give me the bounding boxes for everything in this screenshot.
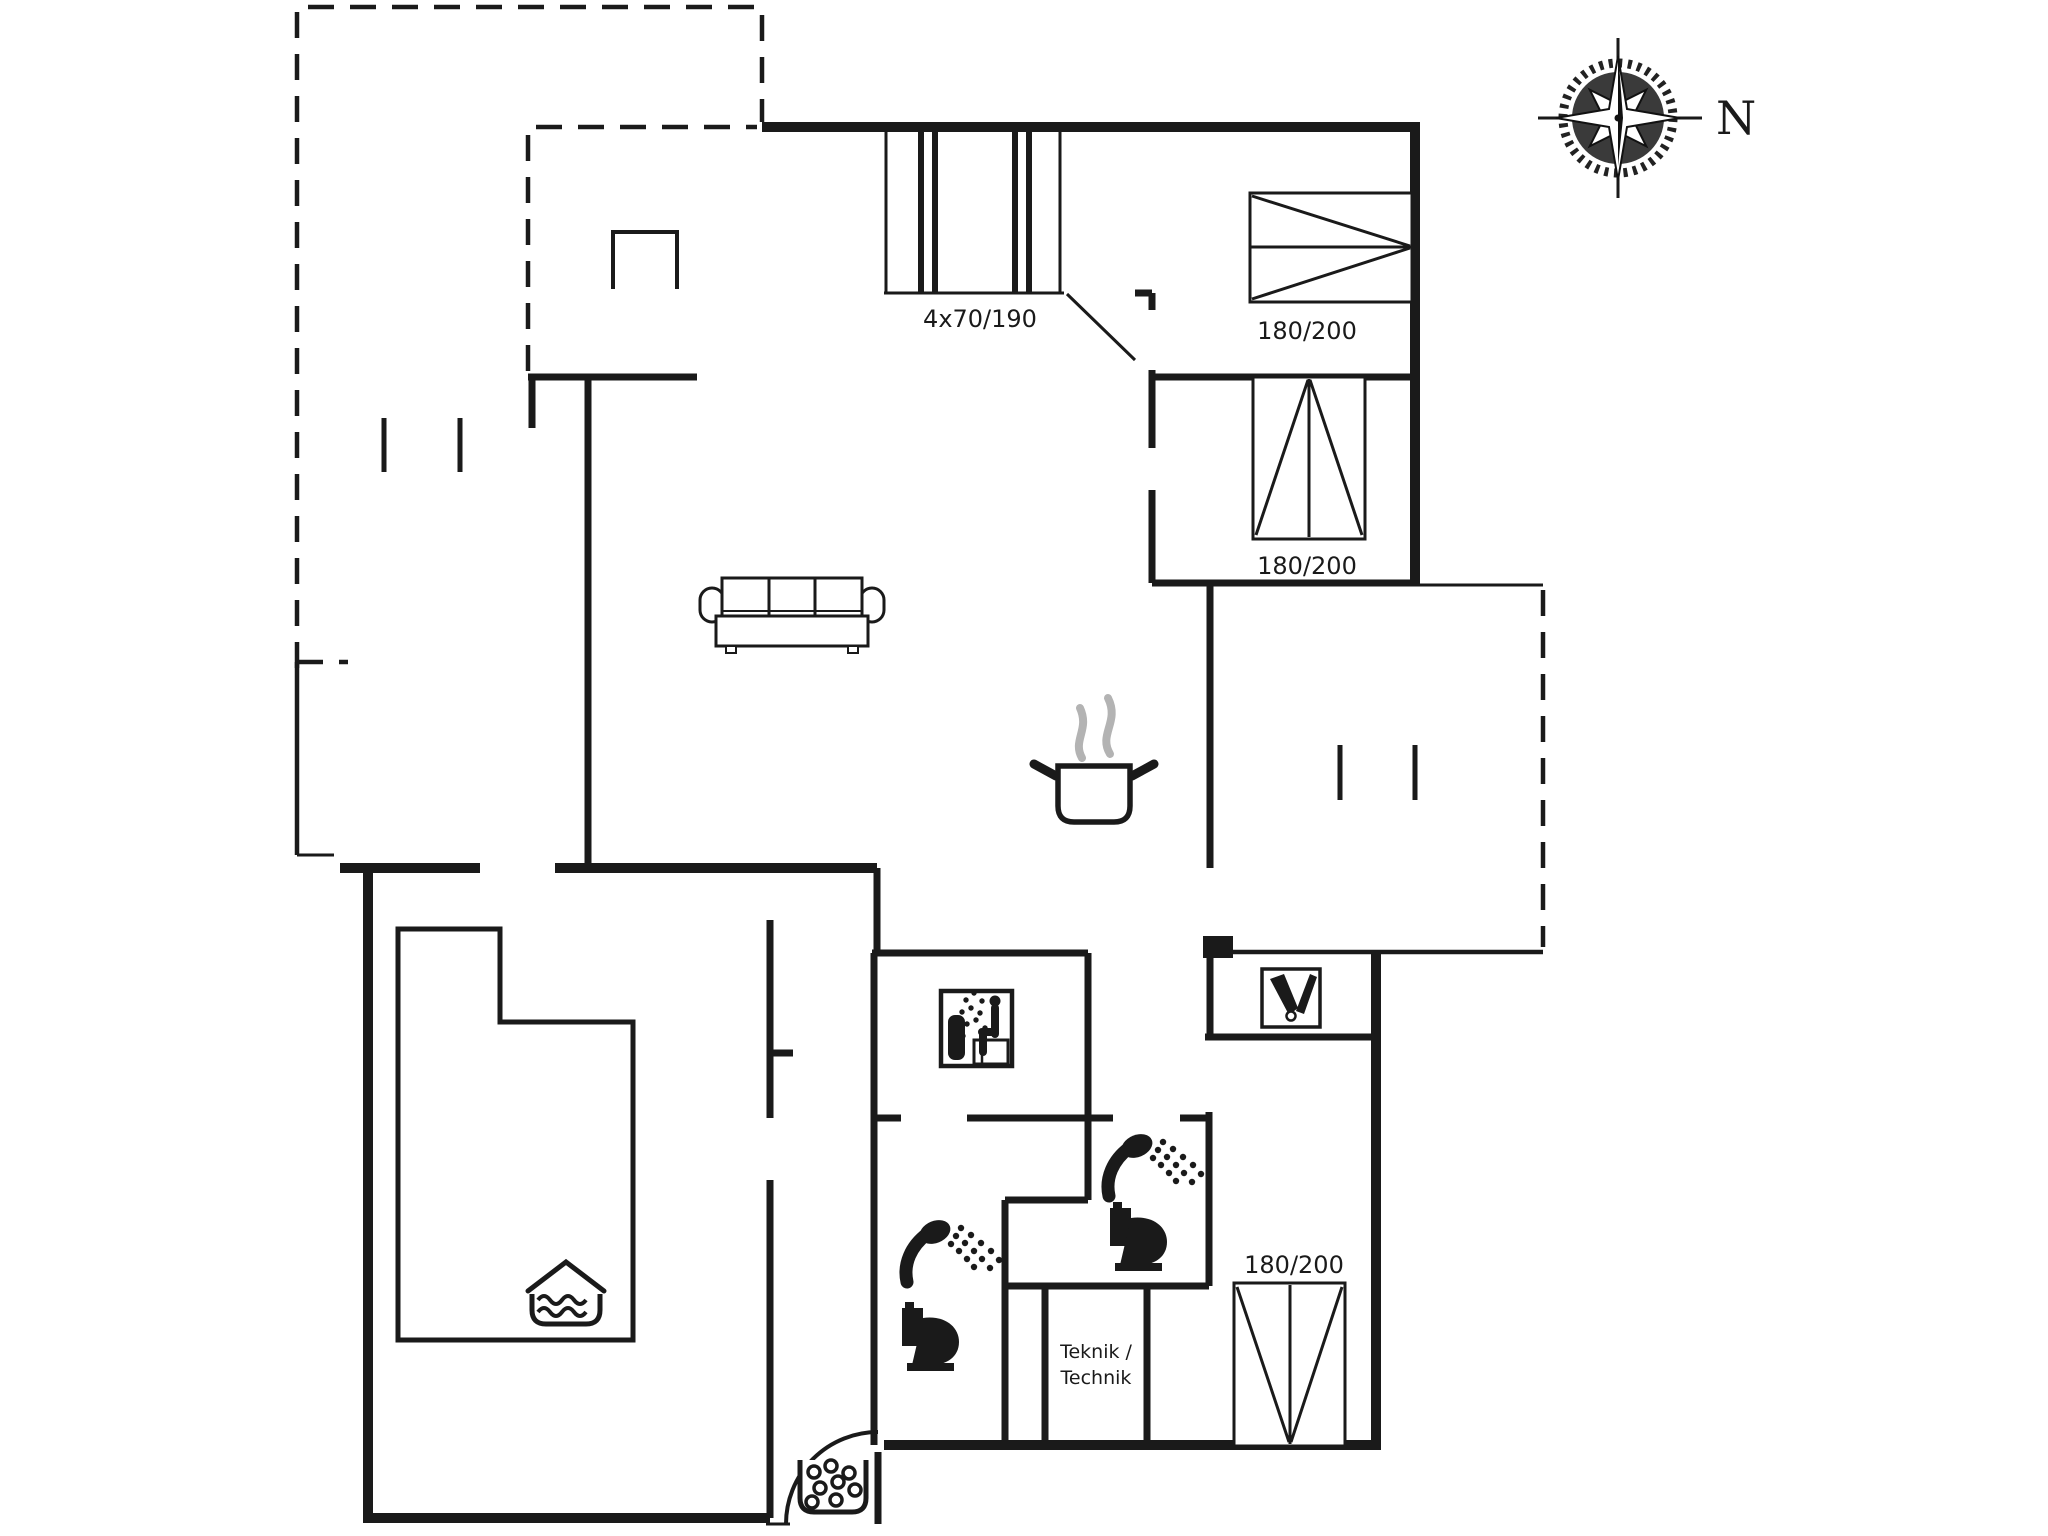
bed-middle-label: 180/200	[1257, 552, 1357, 580]
technik-label-line2: Technik	[1060, 1367, 1132, 1389]
entry-door-swing-line	[1067, 294, 1135, 360]
floor-plan: 4x70/190 180/200 180/200 180/200 Teknik …	[0, 0, 2048, 1536]
toilet-icon-bath-right	[1110, 1202, 1167, 1271]
shower-icon-bath-left	[906, 1216, 1002, 1282]
cooking-pot-icon	[1034, 698, 1154, 822]
wall-end-cap	[1203, 936, 1233, 958]
entry-sliding-door-panels	[921, 130, 1029, 293]
sofa-icon	[700, 578, 884, 653]
floor-plan-drawing: 4x70/190 180/200 180/200 180/200 Teknik …	[0, 0, 2048, 1536]
bed-double-top-icon	[1250, 193, 1412, 302]
compass-rose-icon	[1538, 38, 1702, 198]
pool-basin-outline	[398, 929, 633, 1340]
terrace-grill-mark	[613, 232, 677, 289]
compass-north-label: N	[1716, 91, 1756, 145]
sauna-icon	[941, 990, 1012, 1066]
bed-top-label: 180/200	[1257, 317, 1357, 345]
technik-label-line1: Teknik /	[1059, 1341, 1132, 1363]
bed-double-bottom-icon	[1234, 1283, 1345, 1446]
boot-rack-icon	[1262, 969, 1320, 1027]
whirlpool-icon	[800, 1460, 866, 1512]
boundary-connector	[297, 662, 1543, 952]
bed-double-middle-icon	[1253, 377, 1365, 539]
shower-icon-bath-right	[1108, 1130, 1204, 1196]
bed-bottom-label: 180/200	[1244, 1251, 1344, 1279]
toilet-icon-bath-left	[902, 1302, 959, 1371]
entry-doors-label: 4x70/190	[923, 305, 1037, 333]
